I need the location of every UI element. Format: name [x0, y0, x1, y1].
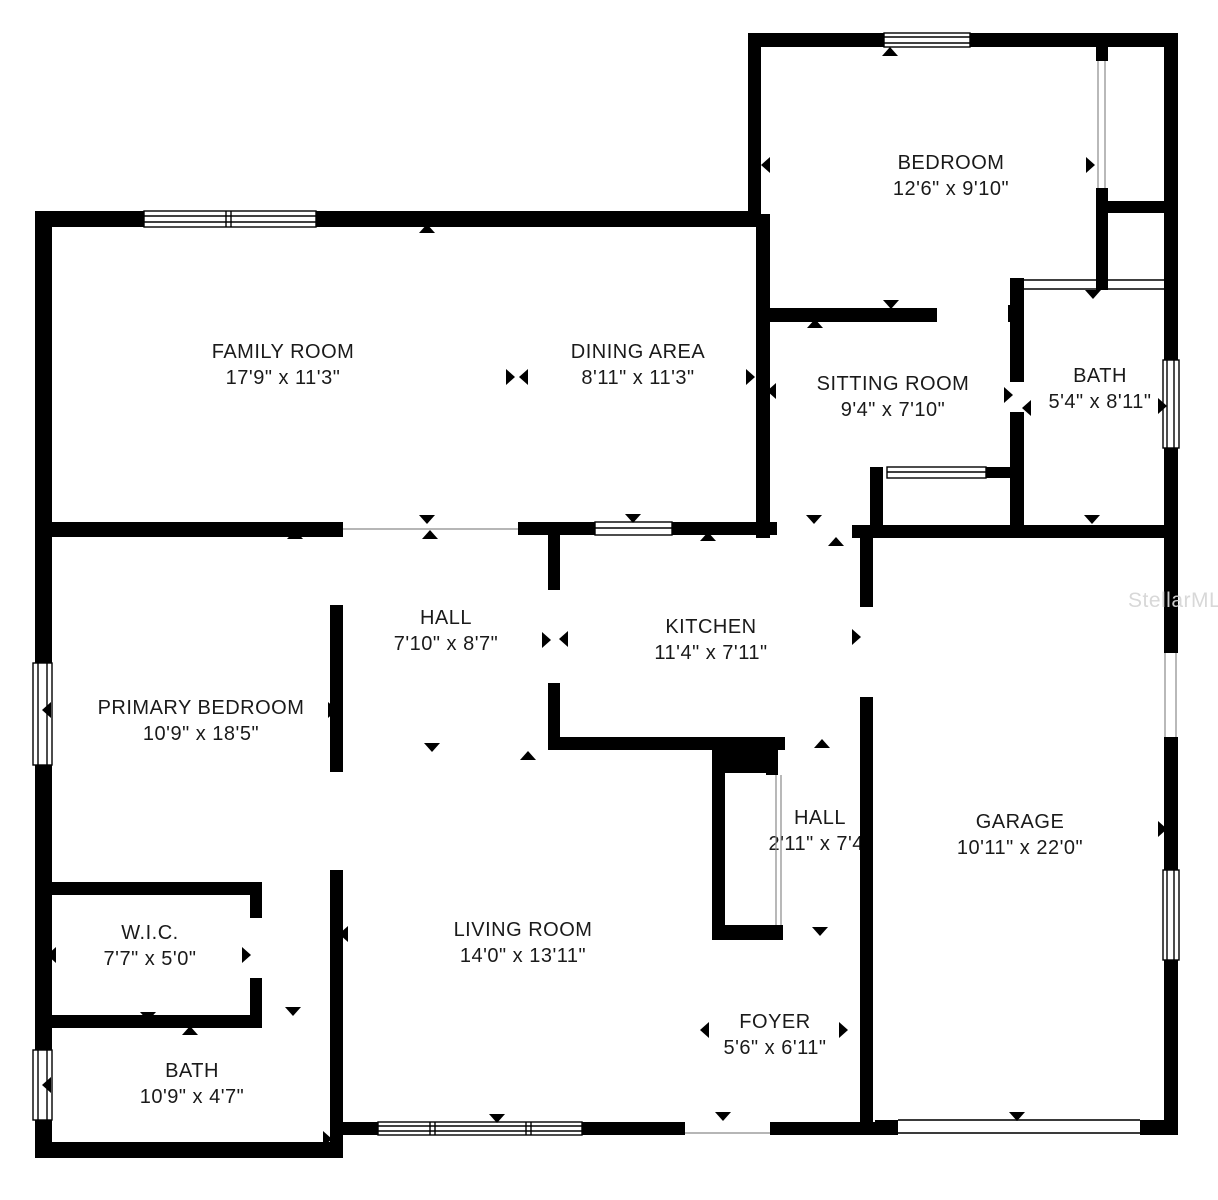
arrow-right-icon	[746, 369, 755, 385]
arrow-down-icon	[424, 743, 440, 752]
arrow-down-icon	[1085, 290, 1101, 299]
arrow-right-icon	[242, 947, 251, 963]
arrow-left-icon	[519, 369, 528, 385]
windows	[33, 33, 1179, 1135]
arrow-down-icon	[883, 300, 899, 309]
bath-fixture-lines	[1023, 280, 1164, 289]
arrow-up-icon	[814, 739, 830, 748]
window-living-room-bottom	[378, 1122, 582, 1135]
arrow-down-icon	[812, 927, 828, 936]
window-garage-right	[1163, 870, 1179, 960]
arrow-left-icon	[559, 631, 568, 647]
arrow-right-icon	[1004, 387, 1013, 403]
arrow-right-icon	[506, 369, 515, 385]
floor-plan: FAMILY ROOM 17'9" x 11'3" DINING AREA 8'…	[0, 0, 1218, 1200]
arrow-down-icon	[419, 515, 435, 524]
arrow-left-icon	[700, 1022, 709, 1038]
arrow-up-icon	[882, 47, 898, 56]
floor-plan-drawing	[0, 0, 1218, 1200]
stellar-mls-watermark: StellarMLS	[1128, 589, 1218, 613]
garage-door	[898, 1120, 1140, 1133]
arrow-right-icon	[542, 632, 551, 648]
arrow-down-icon	[285, 1007, 301, 1016]
sitting-room-closet-door	[887, 467, 986, 478]
arrow-up-icon	[828, 537, 844, 546]
exterior-walls	[35, 33, 1178, 1158]
arrow-left-icon	[761, 157, 770, 173]
interior-walls	[35, 47, 1177, 1135]
arrow-up-icon	[422, 530, 438, 539]
kitchen-pass-through	[595, 522, 672, 535]
arrow-right-icon	[852, 629, 861, 645]
arrow-right-icon	[839, 1022, 848, 1038]
arrow-up-icon	[520, 751, 536, 760]
window-family-room-top	[144, 211, 316, 227]
arrow-right-icon	[1086, 157, 1095, 173]
window-bath-right	[1163, 360, 1179, 448]
window-bedroom-top	[884, 33, 970, 47]
arrow-down-icon	[1084, 515, 1100, 524]
arrow-down-icon	[806, 515, 822, 524]
arrow-down-icon	[715, 1112, 731, 1121]
